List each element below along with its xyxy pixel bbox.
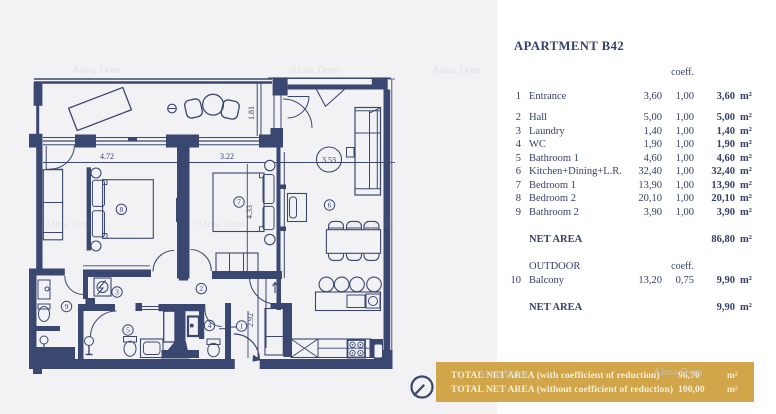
svg-text:4.33: 4.33 <box>245 205 254 219</box>
svg-text:4: 4 <box>208 321 212 330</box>
svg-text:2.92: 2.92 <box>246 313 255 327</box>
svg-text:9: 9 <box>65 302 69 311</box>
svg-text:1.81: 1.81 <box>247 106 256 120</box>
svg-text:3.22: 3.22 <box>220 152 234 161</box>
svg-text:4.72: 4.72 <box>100 152 114 161</box>
svg-text:2: 2 <box>199 284 203 293</box>
svg-text:8: 8 <box>120 205 124 214</box>
svg-text:6: 6 <box>328 201 332 210</box>
svg-text:3.53: 3.53 <box>322 156 336 165</box>
svg-text:7: 7 <box>237 198 241 207</box>
svg-text:1: 1 <box>240 322 244 331</box>
svg-text:3: 3 <box>115 288 119 297</box>
svg-text:5: 5 <box>126 326 130 335</box>
